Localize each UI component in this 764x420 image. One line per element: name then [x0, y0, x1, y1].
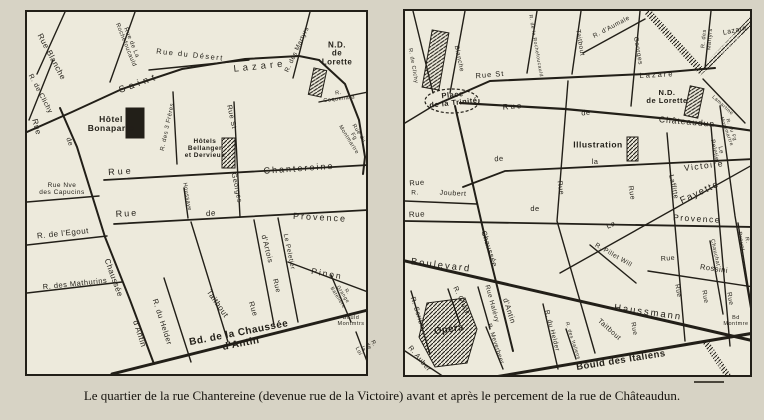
street-label: Blanche: [452, 45, 464, 73]
street-label: R. Meyerbeer: [485, 323, 504, 365]
street-label: Rue: [626, 185, 636, 200]
street-label: Rue du Désert: [156, 48, 224, 63]
street-label: R. de Clichy: [406, 48, 418, 84]
street-label: Rue du Fg Montmartre: [337, 118, 369, 155]
street-label: Bd. de la Chaussée d'Antin: [176, 317, 304, 362]
street-label: Fayette: [679, 180, 721, 207]
street-label: de: [530, 205, 539, 213]
street-label: Lazare: [233, 59, 287, 74]
street-label: R. de la Rochefoucauld: [527, 15, 543, 78]
street-label: Taitbout: [596, 318, 622, 343]
street-label: Place de la Trinité: [428, 89, 478, 110]
street-label: R. des Mathurins: [42, 277, 107, 292]
street-label: d'Artois: [260, 234, 275, 264]
street-label: R. Grange Batelière: [329, 281, 355, 310]
street-label: Bould Montmtrs: [338, 316, 365, 328]
street-label: Saint: [118, 72, 161, 96]
street-label: R. des Italiens: [563, 322, 580, 361]
street-label: Victoire: [684, 159, 725, 173]
street-label: R.: [411, 191, 419, 198]
map-after: R. de ClichyBlanchePlace de la TrinitéR.…: [403, 9, 752, 377]
street-label: Rue: [409, 179, 425, 188]
street-label: Joubert: [439, 190, 466, 199]
street-label: R. de Clichy: [26, 73, 53, 115]
street-label: Bd Montmre: [723, 316, 748, 328]
street-label: Bould des Italiens: [576, 349, 667, 373]
street-label: Houssaye: [181, 182, 192, 211]
street-label: R. de l'Egout: [37, 227, 90, 241]
street-label: Rue: [108, 166, 134, 177]
street-label: Rue: [628, 322, 637, 336]
street-label: R. Richelieu: [706, 343, 730, 376]
street-label: Rue: [247, 301, 259, 318]
street-label: R. Pillet Will: [593, 243, 632, 270]
street-label: N.D. de Lorette: [646, 89, 687, 105]
street-label: Rue: [672, 284, 681, 298]
street-label: d'Antin: [131, 320, 148, 349]
street-label: Boulevard: [410, 257, 472, 274]
street-label: N.D. de Lorette: [322, 41, 353, 66]
street-label: d'Antin: [501, 297, 517, 324]
street-label: Rue: [115, 209, 138, 220]
street-label: de: [494, 155, 504, 164]
street-label: Provence: [673, 213, 721, 224]
street-label: Illustration: [573, 141, 622, 150]
street-label: Rue Blanche: [35, 32, 66, 81]
street-label: R. d'Aumale: [592, 15, 631, 40]
street-label: Rue St: [225, 104, 237, 129]
street-label: Rue: [502, 102, 523, 112]
street-label: Rue: [555, 180, 565, 195]
street-label: Rue: [271, 278, 282, 294]
street-label: Rue: [724, 292, 733, 306]
street-label: Châteaudun: [659, 115, 716, 129]
street-label: La: [605, 219, 617, 230]
street-label: R. Coquenard: [323, 89, 356, 104]
street-label: de: [581, 109, 591, 118]
street-label: Pinon: [311, 267, 344, 281]
street-label: Chantereine: [263, 162, 335, 176]
street-label: Le Peletier: [281, 233, 295, 270]
map-before-labels: Rue BlancheR. de ClichyRuedeRue de La Ro…: [27, 12, 366, 374]
street-label: Georges: [229, 172, 242, 203]
street-label: Hôtels Bellanger et Dervieux: [185, 139, 226, 159]
street-label: Rue Nve des Capucins: [39, 183, 84, 197]
street-label: Lazare: [639, 70, 674, 80]
street-label: Chaussée: [479, 230, 498, 268]
street-label: R. Drouot: [736, 230, 751, 251]
street-label: R. Auber: [406, 345, 432, 374]
street-label: Rue Halévy: [483, 284, 500, 323]
scan-artifact: [694, 381, 724, 383]
street-label: Rue: [409, 210, 426, 219]
street-label: R. des Martyrs: [700, 18, 715, 61]
street-label: Taitbout: [204, 288, 229, 319]
street-label: Rue de La Rochefoucauld: [113, 20, 142, 68]
map-after-labels: R. de ClichyBlanchePlace de la TrinitéR.…: [405, 11, 750, 375]
street-label: Hôtel Bonaparte: [88, 115, 135, 133]
street-label: R. des Martyrs: [285, 26, 312, 74]
street-label: Rue: [30, 118, 42, 136]
street-label: Taitbout: [573, 29, 584, 57]
street-label: la: [592, 158, 599, 166]
map-before: Rue BlancheR. de ClichyRuedeRue de La Ro…: [25, 10, 368, 376]
street-label: Georges: [631, 36, 643, 65]
street-label: Rue: [661, 255, 676, 264]
figure-caption: Le quartier de la rue Chantereine (deven…: [4, 388, 760, 404]
street-label: R. de la Loi: [353, 339, 378, 357]
street-label: Provence: [293, 212, 347, 224]
street-label: R. des 3 Frères: [160, 102, 176, 151]
street-label: R. du Helder: [542, 310, 560, 353]
street-label: Haussmann: [613, 303, 682, 322]
street-label: Rue: [699, 290, 708, 304]
street-label: R. du Helder: [151, 298, 173, 346]
street-label: R. Gluck: [451, 285, 471, 316]
street-label: de: [64, 137, 74, 148]
street-label: Rue St: [475, 70, 505, 80]
street-label: Opéra: [433, 323, 464, 337]
street-label: de: [206, 209, 216, 218]
street-label: Lamartine: [710, 95, 733, 117]
street-label: R. Scribe: [408, 296, 425, 330]
